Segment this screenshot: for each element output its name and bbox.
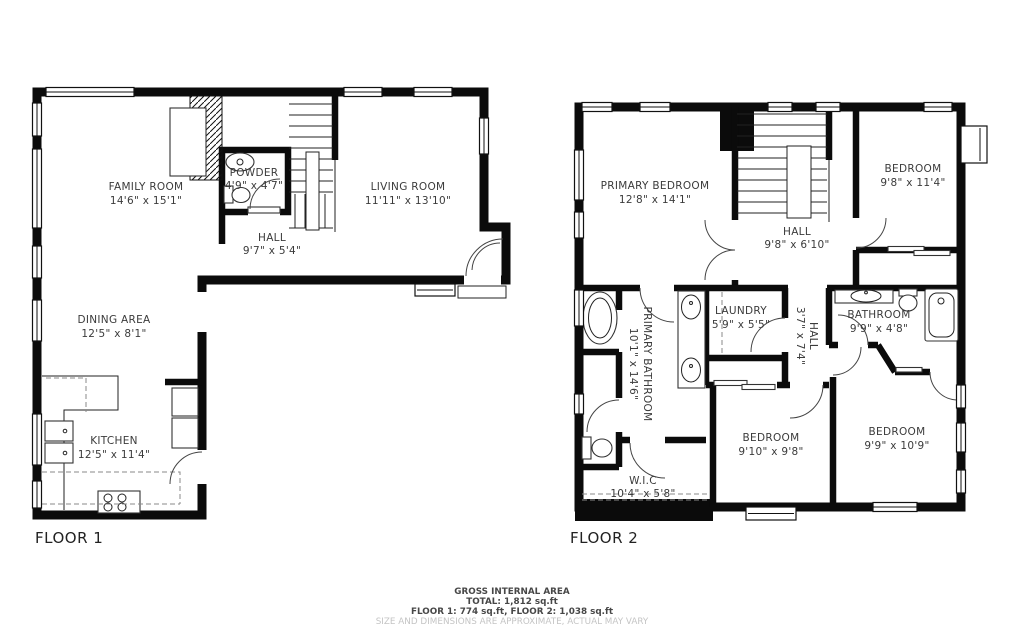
svg-text:LIVING ROOM: LIVING ROOM [371,181,446,193]
room-label-primary-bedroom: PRIMARY BEDROOM 12'8" x 14'1" [601,180,710,206]
svg-text:PRIMARY BATHROOM: PRIMARY BATHROOM [641,307,653,422]
svg-text:3'7" x 7'4": 3'7" x 7'4" [794,307,806,365]
room-label-wic: W.I.C 10'4" x 5'8" [610,475,675,500]
floor2-title: FLOOR 2 [570,529,638,547]
room-label-kitchen: KITCHEN 12'5" x 11'4" [78,435,150,461]
svg-text:BEDROOM: BEDROOM [885,163,942,175]
svg-text:9'7" x 5'4": 9'7" x 5'4" [243,245,301,257]
room-label-laundry: LAUNDRY 5'9" x 5'5" [712,305,770,331]
svg-text:11'11" x 13'10": 11'11" x 13'10" [365,195,451,207]
room-label-bedroom-right: BEDROOM 9'9" x 10'9" [864,426,929,452]
room-label-dining-area: DINING AREA 12'5" x 8'1" [77,314,151,340]
front-door [458,239,506,298]
bathtub [925,289,958,341]
svg-text:BEDROOM: BEDROOM [743,432,800,444]
room-label-powder: POWDER 4'9" x 4'7" [225,167,283,192]
svg-text:HALL: HALL [807,322,819,350]
svg-text:FAMILY ROOM: FAMILY ROOM [109,181,184,193]
hall-window [415,284,455,296]
svg-text:12'8" x 14'1": 12'8" x 14'1" [619,194,691,206]
primary-bath-tub [583,292,617,344]
room-label-primary-bathroom: PRIMARY BATHROOM 10'1" x 14'6" [627,307,653,422]
room-label-hall-floor1: HALL 9'7" x 5'4" [243,232,301,257]
svg-text:W.I.C: W.I.C [629,475,657,487]
svg-text:9'9" x 4'8": 9'9" x 4'8" [850,323,908,335]
svg-text:PRIMARY BEDROOM: PRIMARY BEDROOM [601,180,710,192]
svg-text:10'4" x 5'8": 10'4" x 5'8" [610,488,675,500]
room-label-hall-floor2: HALL 9'8" x 6'10" [764,226,829,251]
room-label-family-room: FAMILY ROOM 14'6" x 15'1" [109,181,184,207]
primary-bath-toilet [582,437,612,459]
svg-text:HALL: HALL [258,232,286,244]
floor2-plan: PRIMARY BEDROOM 12'8" x 14'1" BEDROOM 9'… [570,103,987,548]
room-label-bedroom-top-right: BEDROOM 9'8" x 11'4" [880,163,945,189]
svg-text:9'8" x 6'10": 9'8" x 6'10" [764,239,829,251]
svg-text:5'9" x 5'5": 5'9" x 5'5" [712,319,770,331]
footer-notes: GROSS INTERNAL AREA TOTAL: 1,812 sq.ft F… [376,587,649,627]
svg-text:9'10" x 9'8": 9'10" x 9'8" [738,446,803,458]
fireplace [170,96,222,180]
floorplan-drawing: FAMILY ROOM 14'6" x 15'1" POWDER 4'9" x … [0,0,1024,639]
bathroom-toilet [899,289,917,311]
svg-text:9'9" x 10'9": 9'9" x 10'9" [864,440,929,452]
floor1-plan: FAMILY ROOM 14'6" x 15'1" POWDER 4'9" x … [33,88,507,548]
svg-text:HALL: HALL [783,226,811,238]
footer-line3: FLOOR 1: 774 sq.ft, FLOOR 2: 1,038 sq.ft [411,607,613,617]
svg-text:LAUNDRY: LAUNDRY [715,305,767,317]
svg-text:10'1" x 14'6": 10'1" x 14'6" [627,328,639,400]
svg-text:POWDER: POWDER [230,167,279,179]
svg-text:12'5" x 11'4": 12'5" x 11'4" [78,449,150,461]
kitchen-sink [45,421,73,463]
bathroom-vanity [835,290,893,303]
staircase-floor1 [289,104,333,230]
fridge-pantry [172,388,198,448]
floor1-title: FLOOR 1 [35,529,103,547]
footer-line2: TOTAL: 1,812 sq.ft [466,597,558,607]
footer-line1: GROSS INTERNAL AREA [454,587,570,597]
svg-text:DINING AREA: DINING AREA [77,314,151,326]
floorplan-page: FAMILY ROOM 14'6" x 15'1" POWDER 4'9" x … [0,0,1024,639]
svg-text:12'5" x 8'1": 12'5" x 8'1" [81,328,146,340]
stove [98,491,140,513]
room-label-bedroom-mid: BEDROOM 9'10" x 9'8" [738,432,803,458]
svg-text:14'6" x 15'1": 14'6" x 15'1" [110,195,182,207]
footer-disclaimer: SIZE AND DIMENSIONS ARE APPROXIMATE, ACT… [376,617,649,627]
room-label-hall-small: HALL 3'7" x 7'4" [794,307,819,365]
svg-text:BEDROOM: BEDROOM [869,426,926,438]
svg-text:KITCHEN: KITCHEN [90,435,138,447]
svg-text:9'8" x 11'4": 9'8" x 11'4" [880,177,945,189]
primary-bath-vanity [678,291,705,388]
svg-text:4'9" x 4'7": 4'9" x 4'7" [225,180,283,192]
svg-text:BATHROOM: BATHROOM [847,309,910,321]
room-label-living-room: LIVING ROOM 11'11" x 13'10" [365,181,451,207]
